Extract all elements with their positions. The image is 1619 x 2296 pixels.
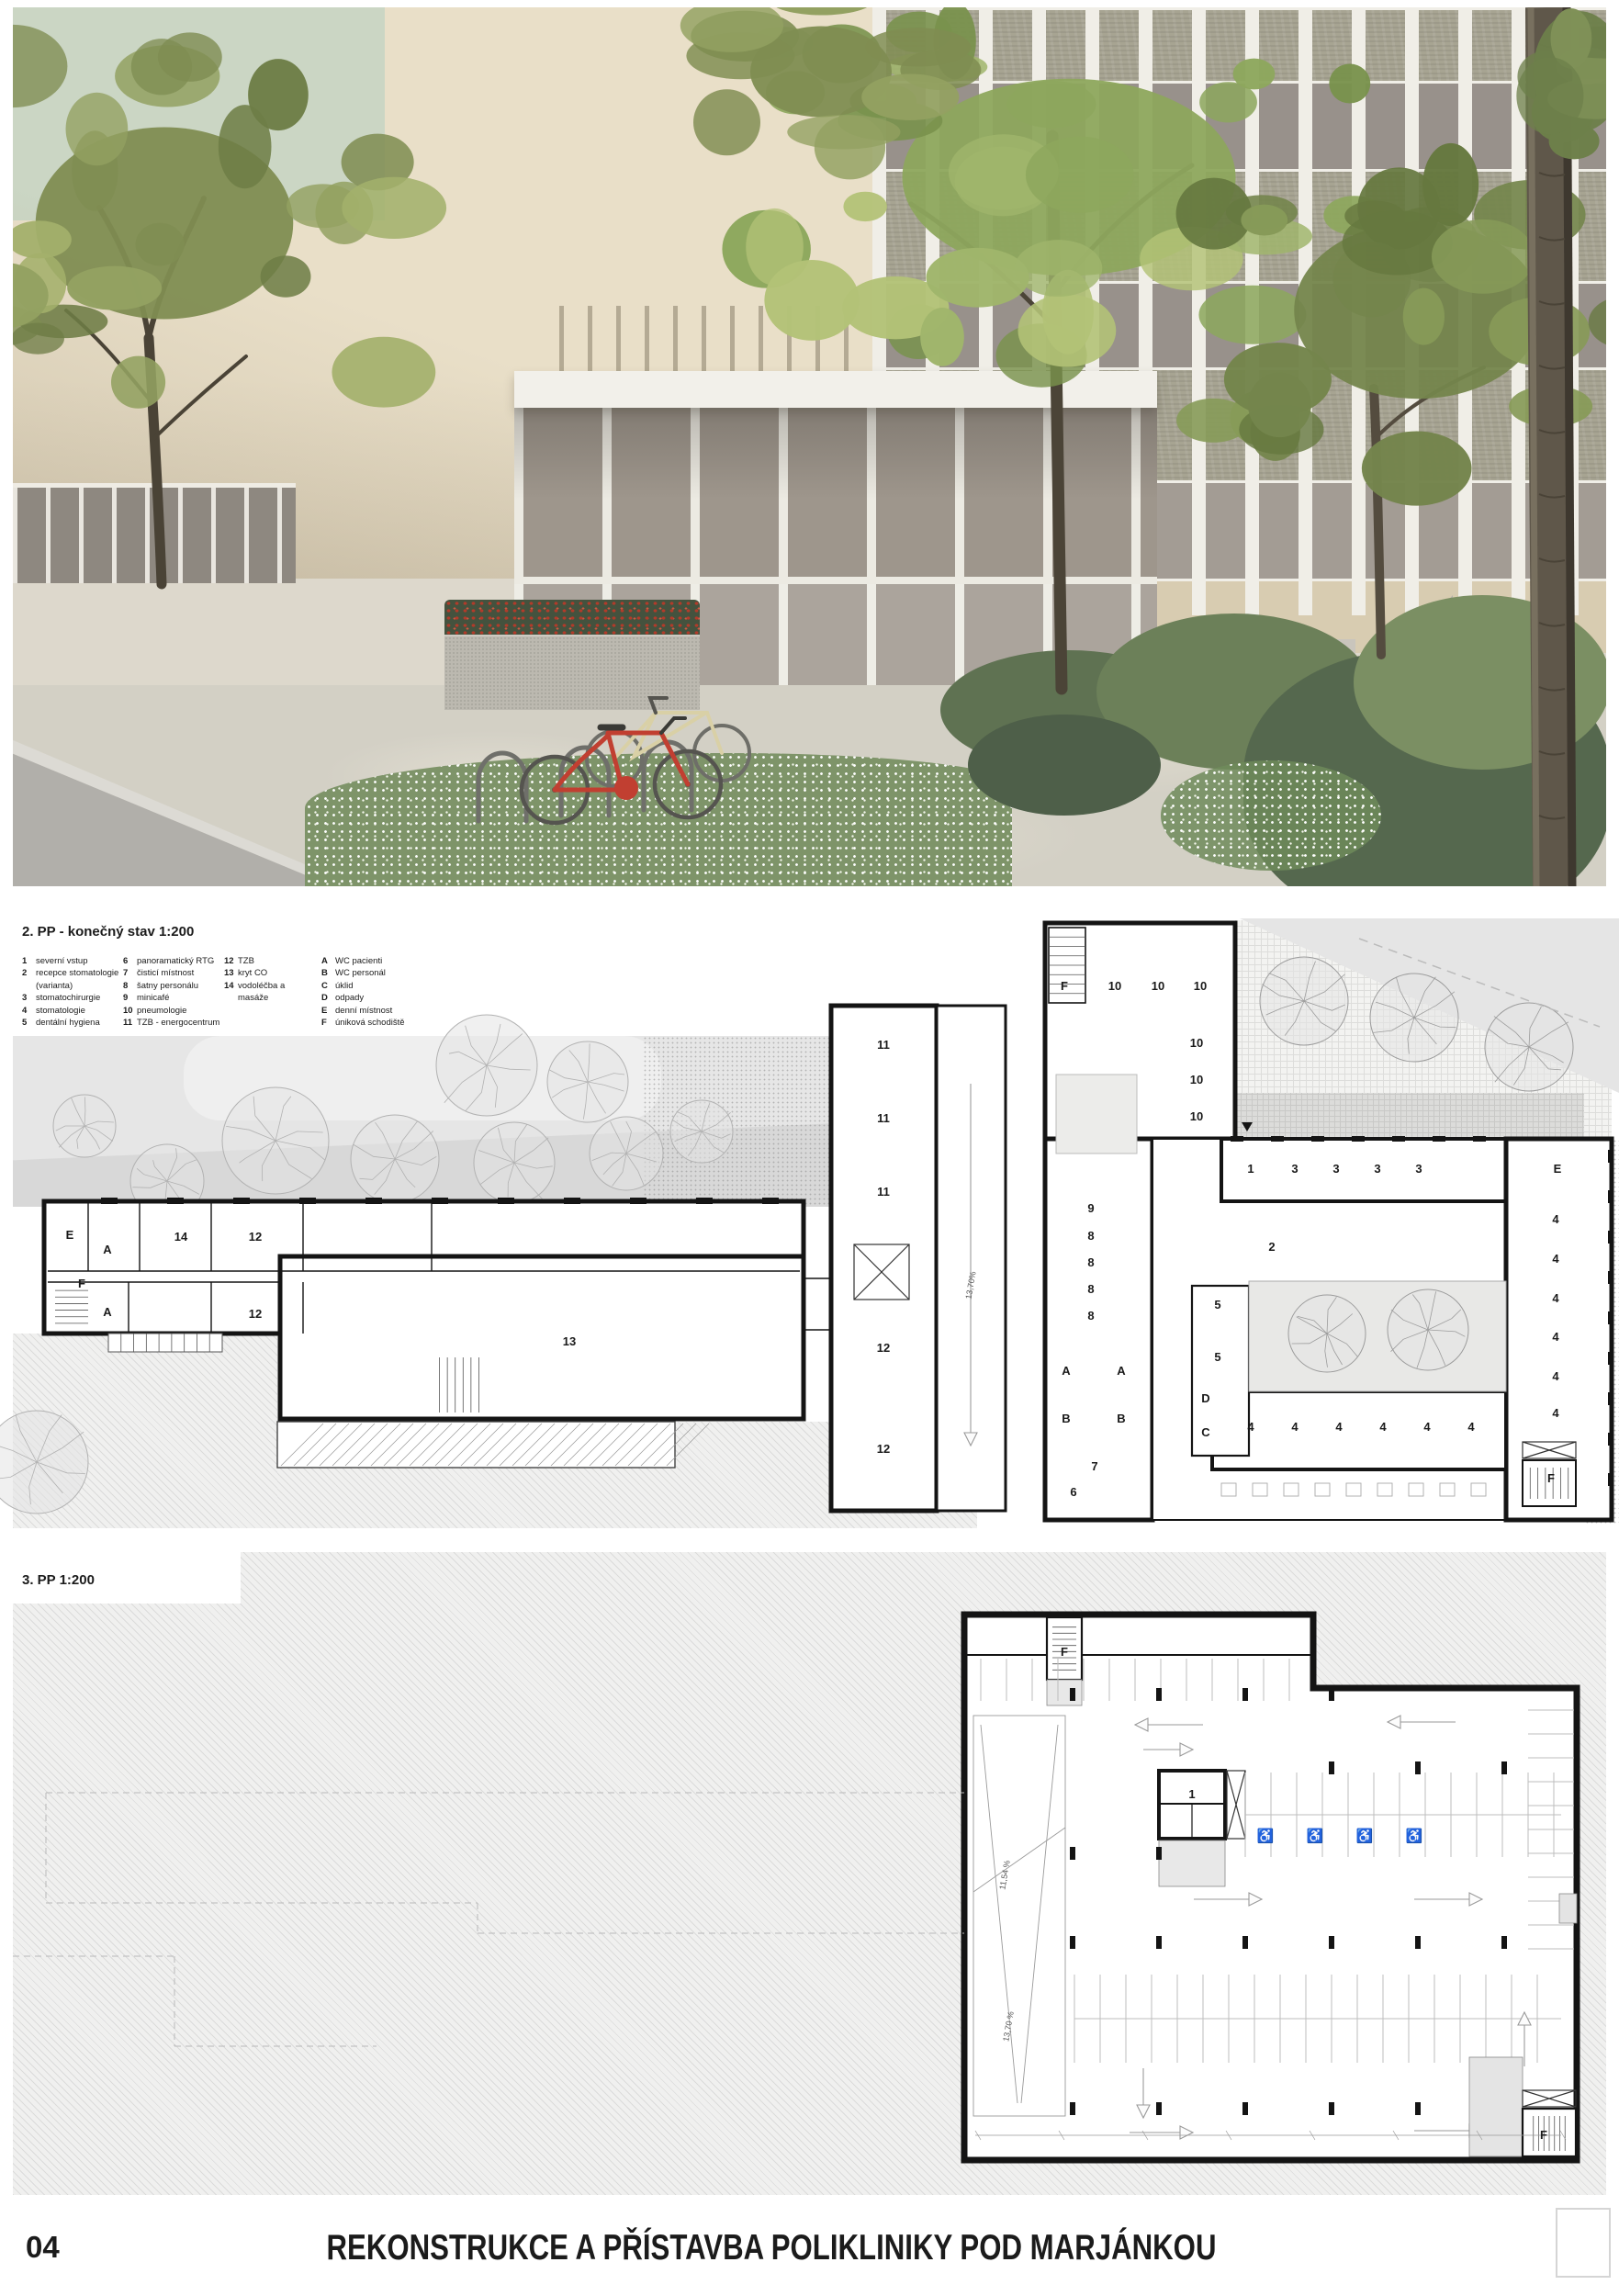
room-label: 4 bbox=[1335, 1420, 1343, 1434]
room-label: 4 bbox=[1552, 1291, 1559, 1305]
room-label: 4 bbox=[1552, 1406, 1559, 1420]
room-label: 12 bbox=[249, 1230, 262, 1244]
footer: 04 REKONSTRUKCE A PŘÍSTAVBA POLIKLINIKY … bbox=[0, 2197, 1619, 2296]
room-label: B bbox=[1117, 1412, 1125, 1425]
presentation-sheet: 2. PP - konečný stav 1:200 1severní vstu… bbox=[0, 0, 1619, 2296]
room-label: 5 bbox=[1214, 1350, 1220, 1364]
plan-tree bbox=[1485, 1003, 1573, 1091]
svg-text:♿: ♿ bbox=[1257, 1828, 1275, 1844]
room-label: 8 bbox=[1087, 1282, 1094, 1296]
plan-tree bbox=[547, 1041, 628, 1122]
svg-text:♿: ♿ bbox=[1406, 1828, 1423, 1844]
room-label: 10 bbox=[1190, 1036, 1203, 1050]
bike-rack-hoop bbox=[478, 753, 526, 821]
room-label: A bbox=[1117, 1364, 1126, 1378]
plan-tree bbox=[436, 1015, 537, 1116]
plan-tree bbox=[0, 1411, 88, 1514]
room-label: 4 bbox=[1423, 1420, 1431, 1434]
room-label: A bbox=[1062, 1364, 1071, 1378]
room-label: 4 bbox=[1552, 1330, 1559, 1344]
floorplan-2pp-drawing: 13,70%EA1412FA12131111111212F10101010101… bbox=[0, 918, 1619, 1552]
room-label: A bbox=[103, 1243, 112, 1256]
room-label: F bbox=[78, 1277, 85, 1290]
floorplan-3pp-section: 3. PP 1:200 ♿♿♿♿F1F11,54 %13,70 % bbox=[0, 1552, 1619, 2197]
room-label: 2 bbox=[1268, 1240, 1275, 1254]
room-label: 1 bbox=[1188, 1787, 1195, 1801]
room-label: 3 bbox=[1291, 1162, 1298, 1176]
room-label: E bbox=[66, 1228, 74, 1242]
svg-text:♿: ♿ bbox=[1307, 1828, 1324, 1844]
room-label: 8 bbox=[1087, 1229, 1094, 1243]
plan-tree bbox=[1370, 974, 1458, 1062]
room-label: 4 bbox=[1552, 1369, 1559, 1383]
room-label: 7 bbox=[1091, 1459, 1097, 1473]
room-label: 10 bbox=[1108, 979, 1121, 993]
floorplan-3pp-drawing: ♿♿♿♿F1F11,54 %13,70 % bbox=[0, 1552, 1619, 2197]
plan-tree bbox=[1288, 1295, 1366, 1372]
room-label: 11 bbox=[877, 1185, 890, 1199]
room-label: 3 bbox=[1415, 1162, 1422, 1176]
room-label: A bbox=[103, 1305, 112, 1319]
plan-tree bbox=[670, 1100, 733, 1163]
room-label: 4 bbox=[1552, 1252, 1559, 1266]
room-label: B bbox=[1062, 1412, 1070, 1425]
room-label: 3 bbox=[1332, 1162, 1339, 1176]
sheet-title: REKONSTRUKCE A PŘÍSTAVBA POLIKLINIKY POD… bbox=[257, 2228, 1286, 2268]
room-label: 11 bbox=[877, 1038, 890, 1052]
room-label: 4 bbox=[1291, 1420, 1299, 1434]
room-label: F bbox=[1061, 979, 1068, 993]
tree-trunk bbox=[1374, 367, 1484, 655]
room-label: 12 bbox=[249, 1307, 262, 1321]
footprint-dashed-outline bbox=[13, 1793, 964, 2046]
stamp-box bbox=[1556, 2208, 1611, 2278]
room-label: 14 bbox=[174, 1230, 188, 1244]
plan-tree bbox=[1388, 1289, 1468, 1370]
plan-tree bbox=[474, 1122, 555, 1203]
plan-tree bbox=[1260, 957, 1348, 1045]
room-label: F bbox=[1540, 2128, 1547, 2142]
room-label: 10 bbox=[1194, 979, 1207, 993]
room-label: 3 bbox=[1374, 1162, 1380, 1176]
plan-tree bbox=[222, 1087, 329, 1194]
room-label: 6 bbox=[1070, 1485, 1076, 1499]
room-label: 9 bbox=[1087, 1201, 1094, 1215]
architectural-rendering bbox=[13, 7, 1606, 886]
room-label: 4 bbox=[1379, 1420, 1387, 1434]
room-label: 13 bbox=[563, 1334, 576, 1348]
room-label: 12 bbox=[877, 1442, 890, 1456]
room-label: F bbox=[1547, 1471, 1555, 1485]
plan-tree bbox=[590, 1117, 663, 1190]
room-label: 10 bbox=[1152, 979, 1164, 993]
room-label: F bbox=[1061, 1645, 1068, 1659]
room-label: 8 bbox=[1087, 1309, 1094, 1322]
tree-foliage bbox=[13, 25, 446, 409]
room-label: 11 bbox=[877, 1111, 890, 1125]
plan-tree bbox=[351, 1115, 439, 1203]
room-label: E bbox=[1554, 1162, 1562, 1176]
room-label: 12 bbox=[877, 1341, 890, 1355]
room-label: 4 bbox=[1552, 1212, 1559, 1226]
room-label: D bbox=[1201, 1391, 1209, 1405]
page-number: 04 bbox=[26, 2230, 60, 2265]
plan-tree bbox=[53, 1095, 116, 1157]
room-label: 4 bbox=[1467, 1420, 1475, 1434]
bike-rack-and-bicycles bbox=[478, 698, 749, 823]
room-label: 10 bbox=[1190, 1073, 1203, 1086]
room-label: C bbox=[1201, 1425, 1210, 1439]
room-label: 1 bbox=[1247, 1162, 1254, 1176]
room-label: 10 bbox=[1190, 1109, 1203, 1123]
trees-and-bikes-layer bbox=[13, 7, 1606, 886]
svg-text:♿: ♿ bbox=[1356, 1828, 1374, 1844]
entry-marker bbox=[1242, 1122, 1253, 1131]
floorplan-2pp-section: 2. PP - konečný stav 1:200 1severní vstu… bbox=[0, 918, 1619, 1552]
room-label: 8 bbox=[1087, 1255, 1094, 1269]
room-label: 4 bbox=[1247, 1420, 1254, 1434]
room-label: 5 bbox=[1214, 1298, 1220, 1311]
